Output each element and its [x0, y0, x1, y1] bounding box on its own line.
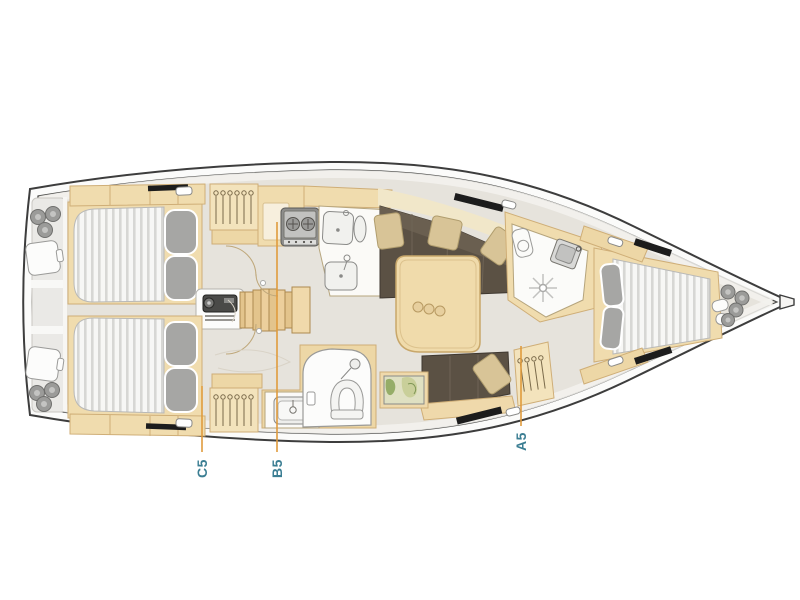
cleat-icon — [176, 419, 192, 428]
yacht-floorplan-drawing: C5 B5 A5 — [0, 0, 800, 600]
locker-shelf — [212, 230, 262, 244]
hanging-locker-salon — [514, 342, 554, 406]
shower-drain-icon — [529, 274, 557, 302]
aft-cabin-starboard — [68, 316, 205, 436]
stern-locker-divider — [31, 280, 67, 288]
sofa-pillow — [374, 212, 404, 249]
toilet-accessory — [307, 392, 315, 405]
pillow — [165, 322, 197, 366]
double-bed-mattress — [74, 318, 164, 413]
cabin-label-b5: B5 — [269, 459, 285, 478]
galley-basin-oval — [354, 216, 366, 242]
stove-icon — [281, 208, 319, 246]
chart-table — [380, 372, 428, 408]
pillow — [600, 306, 624, 350]
cabin-label-a5: A5 — [513, 432, 529, 451]
pillow — [165, 256, 197, 300]
pillow — [600, 263, 624, 307]
floor-hatch — [261, 281, 266, 286]
hanging-locker-starboard — [210, 374, 262, 432]
sofa-pillow — [427, 215, 463, 251]
stern-locker-divider — [31, 326, 67, 334]
hanging-locker-port — [210, 184, 262, 244]
yacht-floorplan-page: C5 B5 A5 — [0, 0, 800, 600]
floor-hatch — [257, 329, 262, 334]
stern-bulkhead — [63, 197, 67, 411]
locker-shelf — [212, 374, 262, 388]
double-bed-mattress — [74, 207, 164, 302]
companionway-landing — [292, 287, 310, 333]
companionway-steps — [240, 287, 310, 333]
engine-compartment — [196, 289, 244, 329]
cleat-icon — [176, 187, 192, 196]
aft-cabin-port — [68, 184, 205, 304]
bow-stem-fitting — [780, 295, 794, 309]
cabin-label-c5: C5 — [194, 459, 210, 478]
pillow — [165, 368, 197, 412]
pillow — [165, 210, 197, 254]
settee-starboard — [420, 352, 516, 420]
salon-table — [396, 256, 480, 352]
galley-sink-icon — [322, 211, 354, 245]
